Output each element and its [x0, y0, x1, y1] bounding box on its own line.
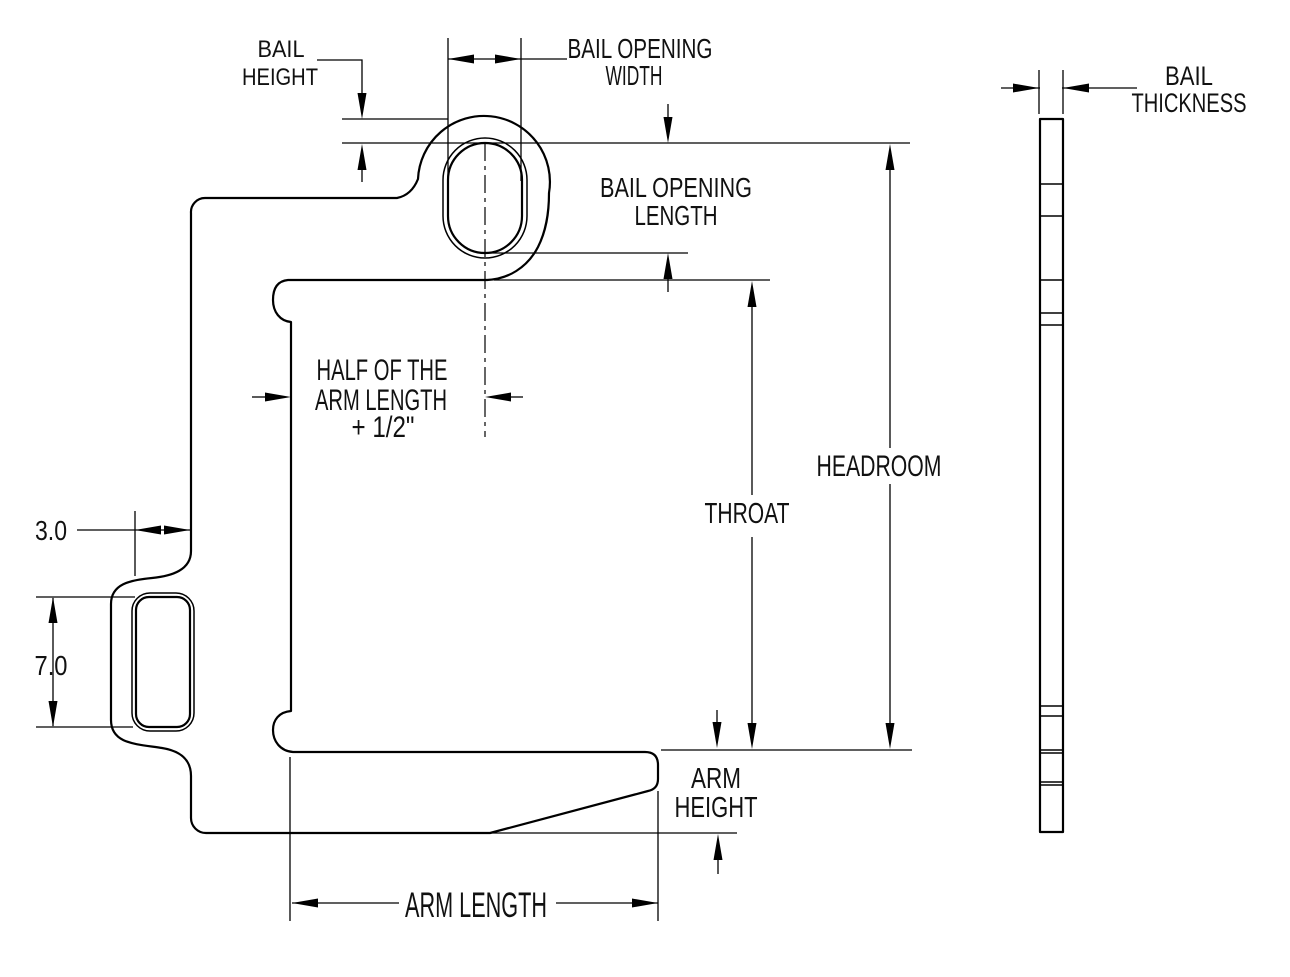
bail-height-label: HEIGHT — [242, 64, 318, 91]
throat-label: THROAT — [705, 498, 790, 530]
bail-opening-width-label: WIDTH — [606, 60, 663, 91]
labels: BAIL HEIGHT BAIL OPENING WIDTH BAIL OPEN… — [35, 33, 1247, 925]
pocket-depth-value: 7.0 — [35, 650, 68, 681]
bail-height-leader — [317, 60, 362, 96]
pocket-chamfer-outline — [132, 593, 194, 731]
half-arm-length-label: + 1/2" — [352, 411, 415, 444]
bail-thickness-label: BAIL — [1165, 61, 1213, 91]
dim-headroom — [886, 144, 895, 749]
bail-thickness-label: THICKNESS — [1132, 88, 1247, 118]
drawing-page: BAIL HEIGHT BAIL OPENING WIDTH BAIL OPEN… — [0, 0, 1290, 977]
side-view-section-lines — [1040, 184, 1063, 785]
dim-pocket-width — [77, 511, 190, 576]
arm-height-label: HEIGHT — [675, 792, 758, 824]
pocket-outline — [136, 597, 190, 727]
pocket-width-value: 3.0 — [35, 515, 67, 546]
dim-bail-height — [317, 60, 448, 182]
headroom-label: HEADROOM — [817, 450, 942, 483]
dim-bail-thickness — [1001, 70, 1137, 114]
fork-pocket-slot — [132, 593, 194, 731]
arm-length-label: ARM LENGTH — [405, 886, 547, 925]
side-view — [1040, 119, 1063, 832]
dimensions — [36, 38, 1137, 921]
bail-opening-length-label: LENGTH — [635, 200, 718, 231]
bail-opening-length-label: BAIL OPENING — [600, 172, 752, 203]
hook-front-view — [111, 116, 658, 833]
hook-profile-outline — [111, 116, 658, 833]
side-profile-outline — [1040, 119, 1063, 832]
half-arm-length-label: HALF OF THE — [317, 354, 448, 387]
technical-drawing: BAIL HEIGHT BAIL OPENING WIDTH BAIL OPEN… — [0, 0, 1290, 977]
dim-bail-opening-width — [448, 38, 567, 181]
arm-height-label: ARM — [691, 763, 741, 795]
bail-height-label: BAIL — [258, 36, 305, 63]
